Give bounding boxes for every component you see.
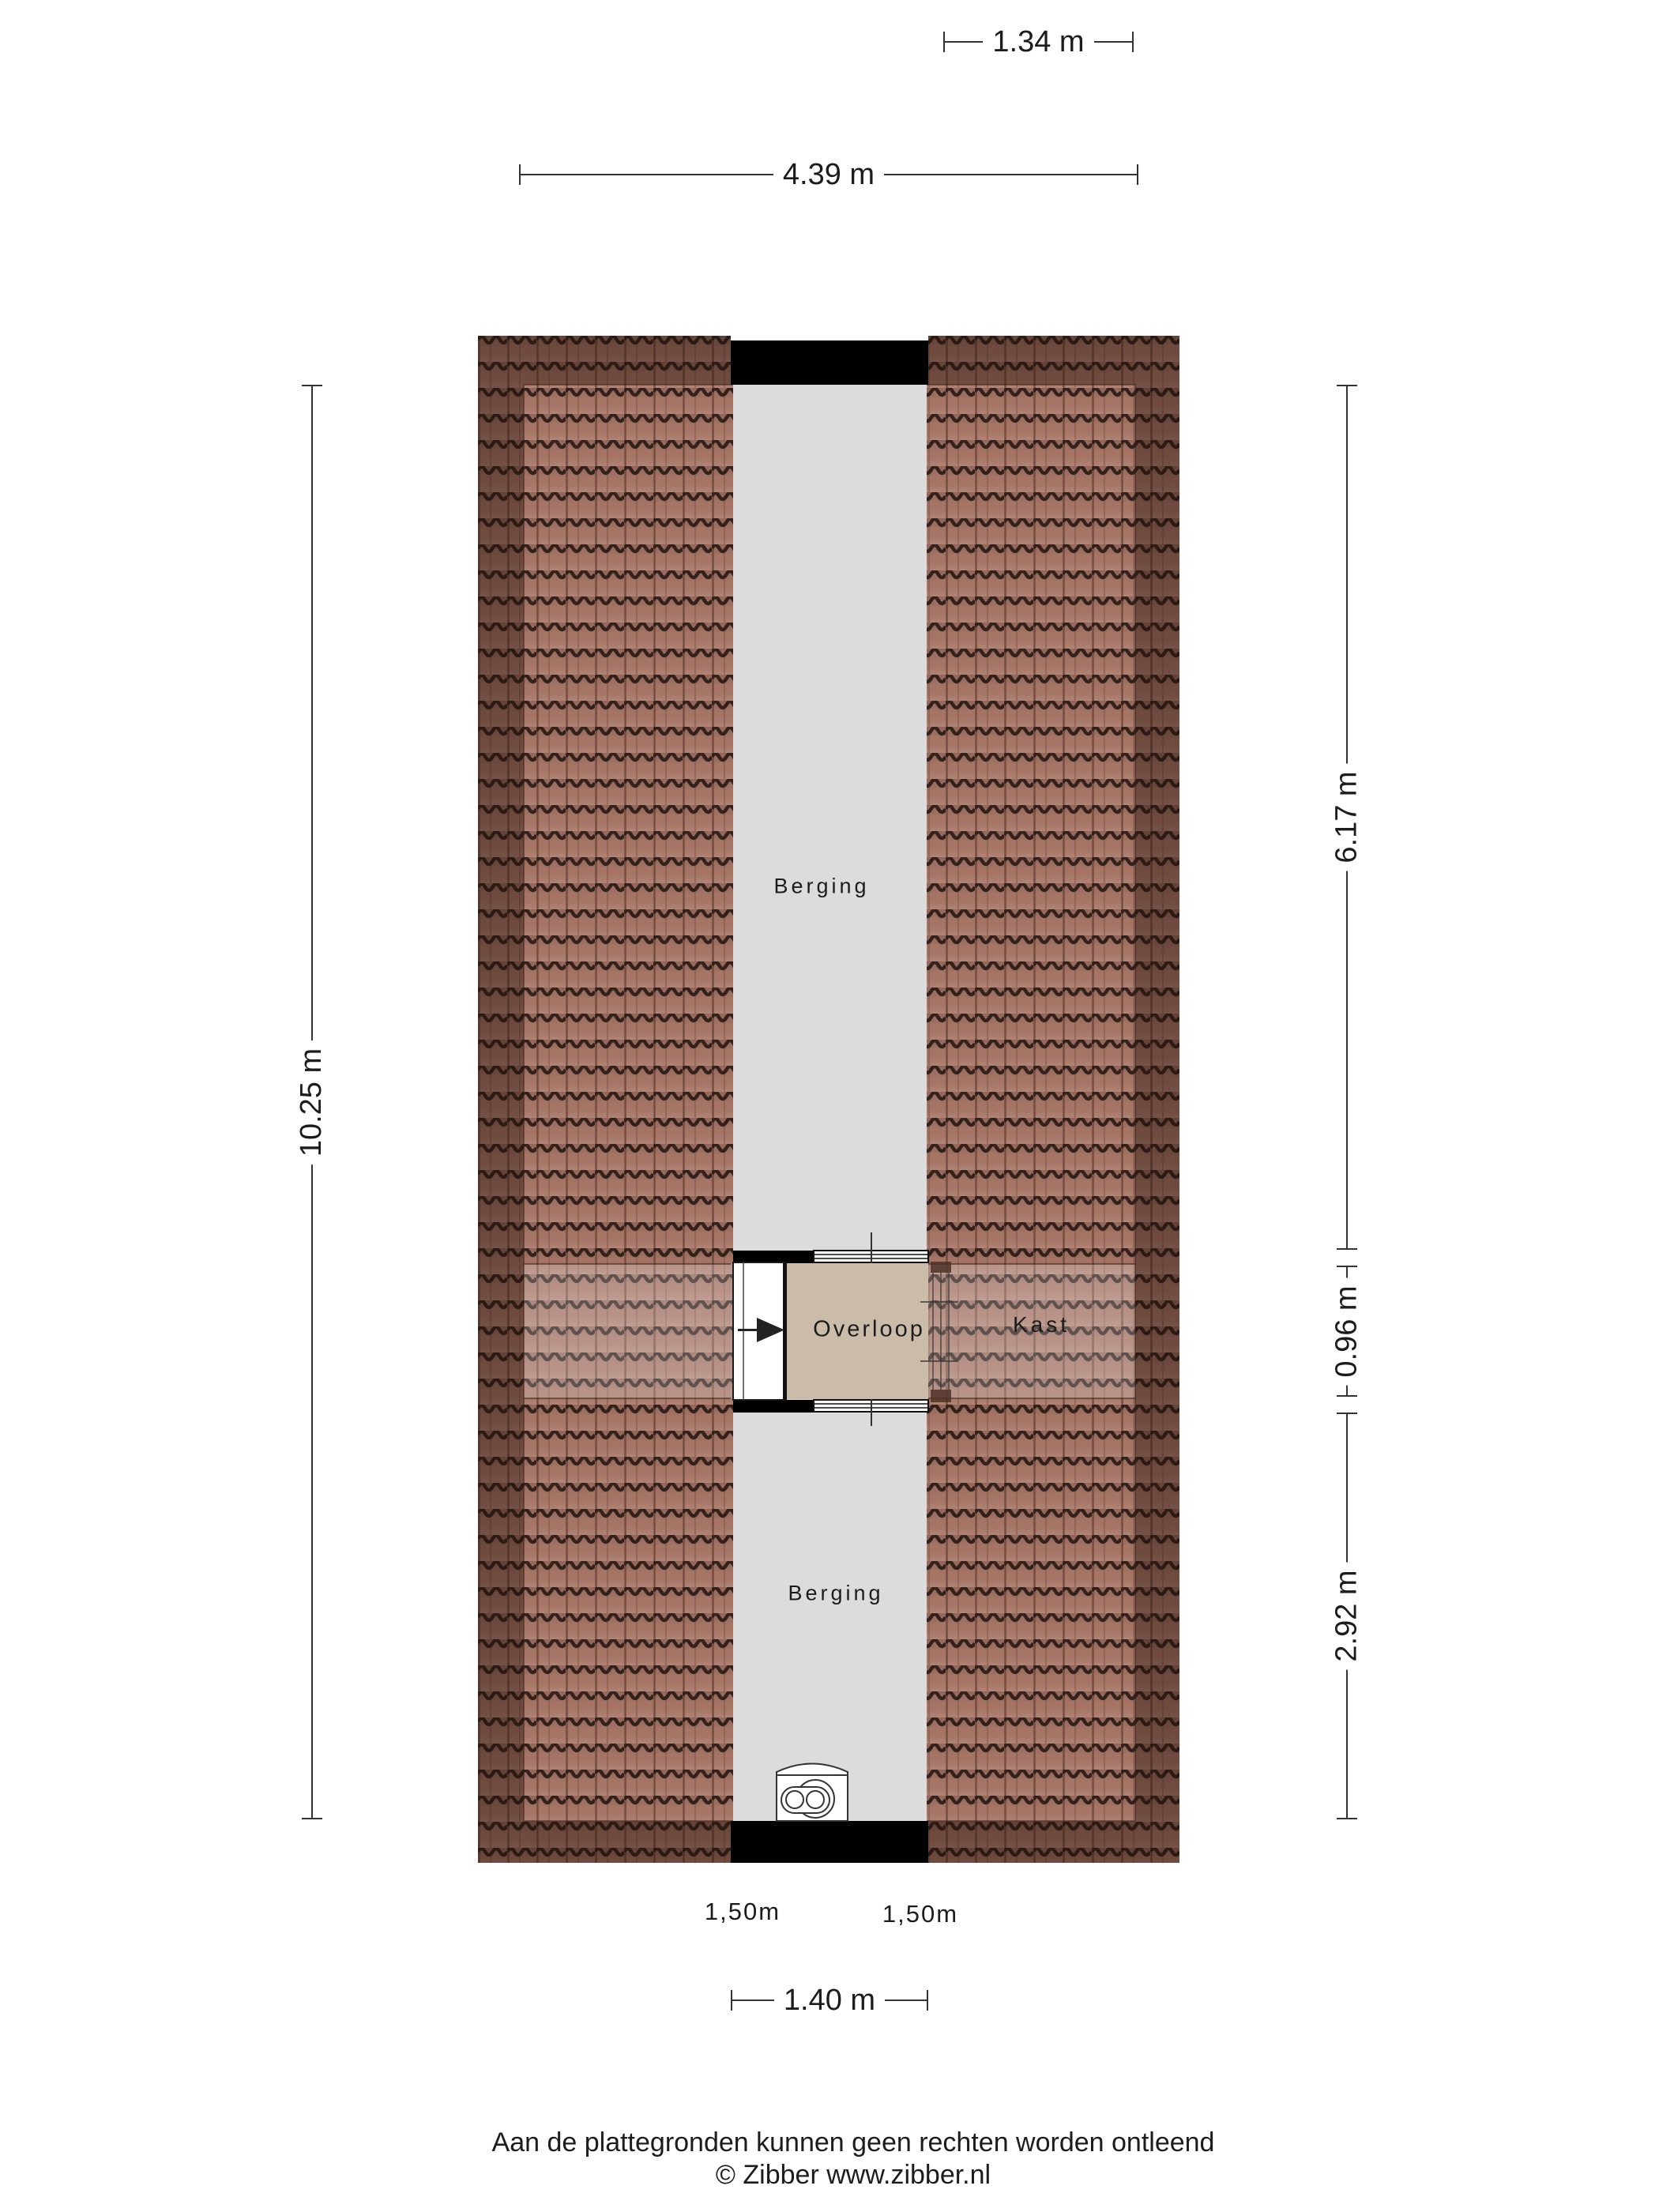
dim-kast-width: 1.34 m [943,24,1134,59]
dim-interior-height: 10.25 m [295,385,329,1819]
dim-kast-width-label: 1.34 m [983,24,1093,61]
staircase [733,1262,787,1400]
floorplan-canvas [478,336,1179,1863]
overloop-label: Overloop [813,1317,925,1343]
headroom-150-left-label: 1,50m [705,1898,781,1926]
dim-berging-bottom-height: 2.92 m [1330,1413,1364,1819]
wall-block-bottom [733,1400,815,1413]
dim-corridor-width-label: 1.40 m [774,1982,885,2019]
wall-block-top [733,1251,814,1263]
dim-berging-top-height: 6.17 m [1330,385,1364,1250]
dim-interior-width-label: 4.39 m [773,156,884,194]
disclaimer: Aan de plattegronden kunnen geen rechten… [492,2127,1215,2191]
dim-berging-top-height-label: 6.17 m [1327,763,1367,871]
copyright-text: © Zibber www.zibber.nl [492,2159,1215,2191]
dim-overloop-height-label: 0.96 m [1327,1277,1367,1385]
corridor-strip [731,336,928,1863]
bottom-end-wall [731,1821,928,1863]
disclaimer-text: Aan de plattegronden kunnen geen rechten… [492,2127,1215,2159]
dim-interior-height-label: 10.25 m [292,1040,333,1164]
berging-bottom-label: Berging [788,1582,883,1606]
dim-interior-width: 4.39 m [519,157,1138,192]
boiler-icon [777,1764,848,1822]
dim-berging-bottom-height-label: 2.92 m [1327,1562,1367,1669]
dim-overloop-height: 0.96 m [1330,1266,1364,1397]
kast-label: Kast [1013,1312,1070,1337]
headroom-150-right-label: 1,50m [882,1900,958,1928]
dim-corridor-width: 1.40 m [731,1983,928,2018]
top-end-wall [731,340,928,385]
berging-top-label: Berging [773,875,869,899]
